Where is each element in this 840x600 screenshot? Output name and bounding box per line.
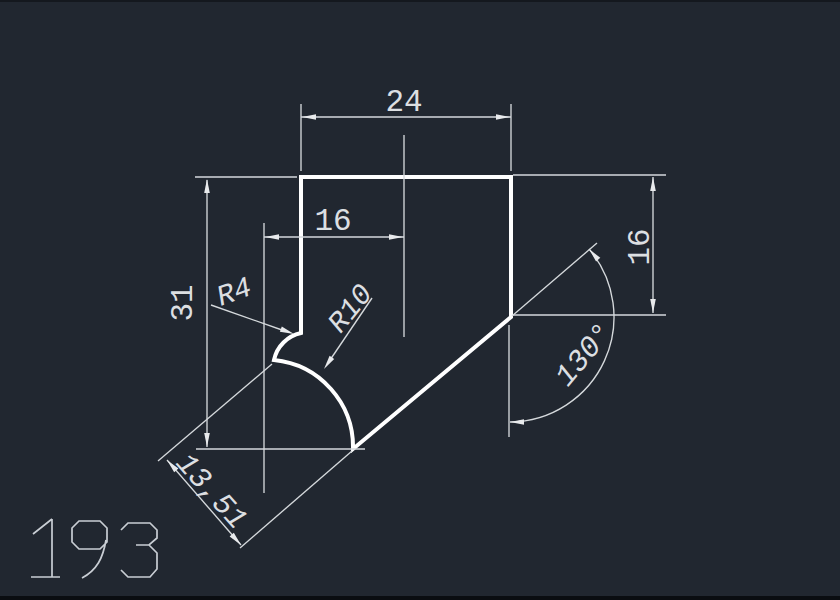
- cad-viewport: 24 16 31 16 130° 13,: [0, 0, 840, 600]
- dim-text-16-right: 16: [623, 228, 658, 265]
- top-edge-strip: [0, 0, 840, 2]
- bottom-edge-strip: [0, 596, 840, 600]
- dim-text-24: 24: [385, 85, 422, 120]
- dim-text-16: 16: [314, 204, 351, 239]
- cad-canvas: 24 16 31 16 130° 13,: [0, 0, 840, 600]
- dim-text-31: 31: [166, 284, 201, 321]
